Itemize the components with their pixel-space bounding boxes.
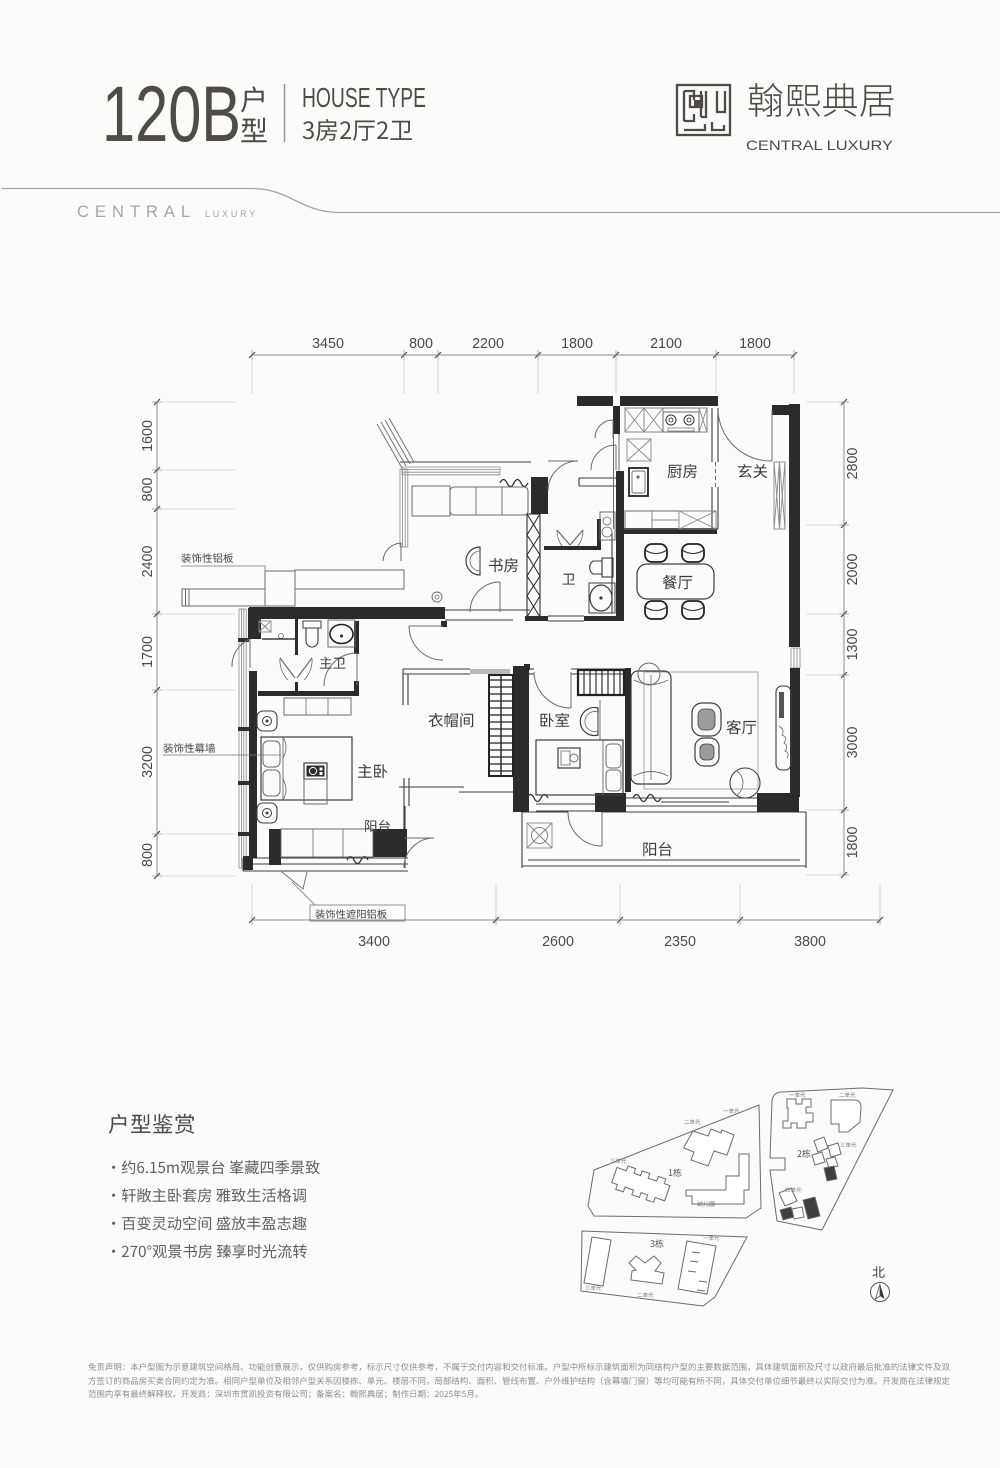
svg-text:800: 800 xyxy=(140,478,156,502)
svg-text:3200: 3200 xyxy=(140,746,156,778)
svg-text:LUXURY: LUXURY xyxy=(205,209,258,220)
svg-text:2350: 2350 xyxy=(664,934,696,950)
svg-text:800: 800 xyxy=(140,843,156,867)
svg-text:CENTRAL: CENTRAL xyxy=(77,202,196,221)
svg-text:2200: 2200 xyxy=(472,336,504,352)
svg-text:1700: 1700 xyxy=(140,636,156,668)
svg-text:2600: 2600 xyxy=(542,934,574,950)
svg-text:3450: 3450 xyxy=(312,336,344,352)
svg-text:2800: 2800 xyxy=(845,448,861,480)
svg-text:120B: 120B xyxy=(102,69,241,158)
svg-text:2000: 2000 xyxy=(845,554,861,586)
svg-text:3000: 3000 xyxy=(845,727,861,759)
svg-text:CENTRAL LUXURY: CENTRAL LUXURY xyxy=(746,137,894,153)
svg-text:HOUSE TYPE: HOUSE TYPE xyxy=(302,82,426,113)
svg-text:2100: 2100 xyxy=(650,336,682,352)
svg-text:2400: 2400 xyxy=(140,546,156,578)
svg-text:3400: 3400 xyxy=(358,934,390,950)
svg-text:1800: 1800 xyxy=(739,336,771,352)
svg-text:1300: 1300 xyxy=(845,629,861,661)
svg-text:800: 800 xyxy=(409,336,433,352)
svg-text:1600: 1600 xyxy=(140,420,156,452)
svg-text:3800: 3800 xyxy=(794,934,826,950)
svg-text:1800: 1800 xyxy=(845,827,861,859)
svg-text:1800: 1800 xyxy=(561,336,593,352)
